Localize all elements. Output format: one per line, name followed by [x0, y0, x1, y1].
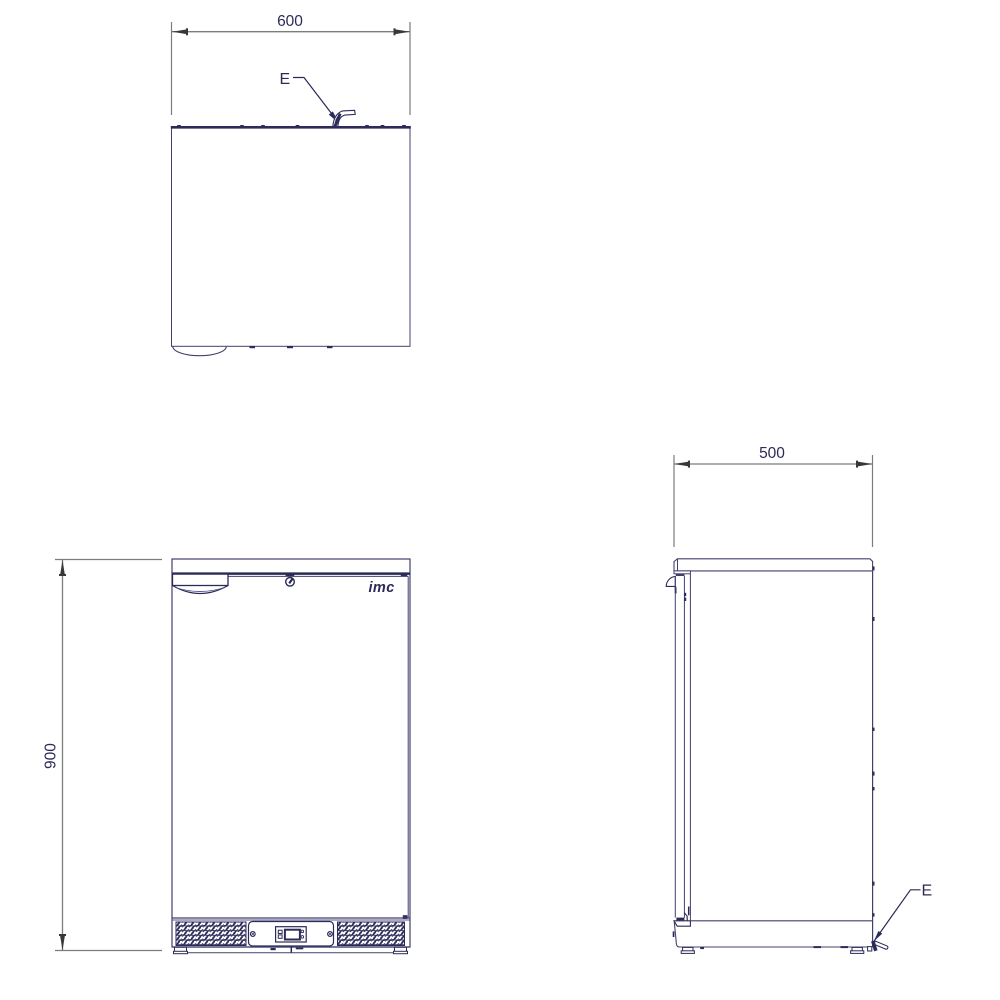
svg-text:500: 500	[759, 445, 785, 462]
svg-text:E: E	[280, 71, 291, 88]
svg-text:900: 900	[43, 743, 60, 769]
svg-text:600: 600	[277, 13, 303, 30]
svg-text:imc: imc	[369, 580, 395, 596]
svg-text:E: E	[922, 883, 933, 900]
